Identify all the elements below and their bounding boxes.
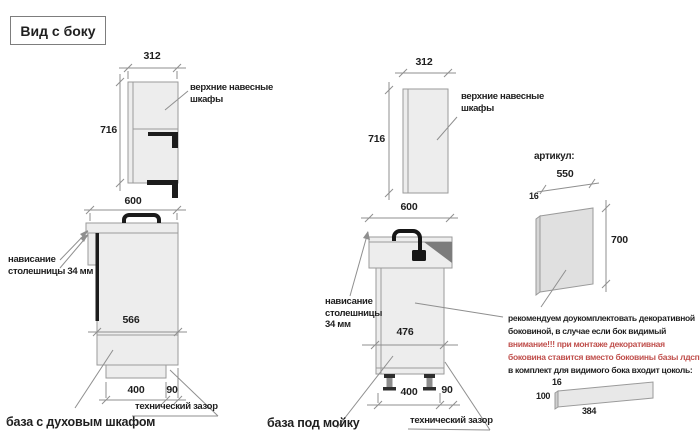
plinth-length-dim: 384 bbox=[582, 406, 596, 416]
sink-wall-cabinet-drawing bbox=[403, 89, 448, 193]
sink-overhang-label: нависание столешницы 34 мм bbox=[325, 296, 387, 331]
oven-gap-dim: 90 bbox=[166, 384, 177, 396]
sink-base-width-dim: 600 bbox=[401, 201, 418, 213]
oven-base-width-dim: 600 bbox=[125, 195, 142, 207]
panel-note-line-3: в комплект для видимого бока входит цоко… bbox=[508, 364, 692, 377]
plinth-height-dim: 100 bbox=[536, 391, 550, 401]
sink-gap-dim: 90 bbox=[441, 384, 452, 396]
sink-wall-height-dim: 716 bbox=[363, 133, 385, 145]
panel-thickness-dim: 16 bbox=[529, 191, 538, 201]
sink-plinth-dim: 400 bbox=[401, 386, 418, 398]
panel-height-dim: 700 bbox=[611, 234, 628, 246]
panel-width-dim: 550 bbox=[557, 168, 574, 180]
oven-wall-height-dim: 716 bbox=[95, 124, 117, 136]
sink-inner-dim: 476 bbox=[397, 326, 414, 338]
plinth-thickness-dim: 16 bbox=[552, 377, 561, 387]
decorative-panel-drawing bbox=[536, 208, 593, 295]
oven-gap-label: технический зазор bbox=[135, 401, 218, 413]
oven-handle-icon bbox=[124, 215, 159, 223]
articul-heading: артикул: bbox=[534, 151, 574, 162]
oven-base-cabinet-drawing bbox=[86, 223, 178, 378]
oven-wall-width-dim: 312 bbox=[144, 50, 161, 62]
oven-wall-cabinet-label: верхние навесные шкафы bbox=[190, 82, 284, 105]
oven-plinth-dim: 400 bbox=[128, 384, 145, 396]
faucet-mixer-body bbox=[412, 250, 426, 261]
panel-note-line-1: рекомендуем доукомплектовать декоративно… bbox=[508, 312, 695, 325]
title-text: Вид с боку bbox=[20, 23, 95, 39]
sink-gap-label: технический зазор bbox=[410, 415, 493, 427]
sink-wall-cabinet-label: верхние навесные шкафы bbox=[461, 91, 555, 114]
oven-door-edge bbox=[96, 233, 100, 321]
sink-base-caption: база под мойку bbox=[267, 416, 360, 430]
panel-note-line-2: боковиной, в случае если бок видимый bbox=[508, 325, 666, 338]
oven-overhang-label: нависание столешницы 34 мм bbox=[8, 254, 102, 277]
side-view-drawing: Вид с боку 312 716 верхние навесные шкаф… bbox=[0, 0, 700, 438]
panel-warning-line-1: внимание!!! при монтаже декоративная bbox=[508, 338, 665, 351]
oven-base-caption: база с духовым шкафом bbox=[6, 415, 155, 429]
oven-inner-dim: 566 bbox=[123, 314, 140, 326]
plinth-drawing bbox=[555, 382, 653, 409]
page-title: Вид с боку bbox=[10, 16, 106, 45]
panel-warning-line-2: боковина ставится вместо боковины базы л… bbox=[508, 351, 700, 364]
sink-wall-width-dim: 312 bbox=[416, 56, 433, 68]
sink-overhang-arrowhead bbox=[363, 231, 370, 240]
